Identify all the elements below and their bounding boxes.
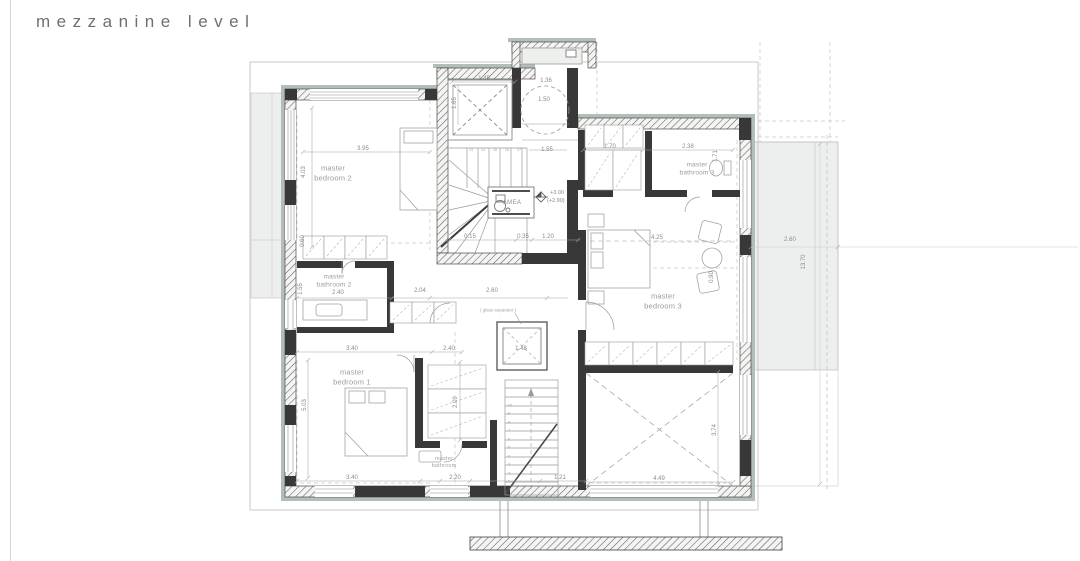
dim-void-width: 4.49 bbox=[653, 476, 665, 482]
bed-bedroom1 bbox=[345, 388, 407, 456]
room-label-master-bedroom-2: master bedroom 2 bbox=[309, 163, 357, 183]
stair-step-number: 9 bbox=[508, 411, 510, 416]
dim-bedroom1-height: 5.03 bbox=[302, 399, 308, 411]
dim-balcony-width: 2.60 bbox=[784, 237, 796, 243]
dim-balcony-height: 13.70 bbox=[801, 254, 807, 269]
lower-stair bbox=[505, 380, 558, 495]
dim-bathroom3-width: 2.38 bbox=[682, 144, 694, 150]
dim-stair-seg2: 0.35 bbox=[517, 234, 529, 240]
dim-bathroom2-closet: 0.60 bbox=[300, 235, 306, 247]
dim-landing-width: 1.55 bbox=[541, 147, 553, 153]
vanity-bathroom2 bbox=[303, 300, 367, 320]
foundation-strip bbox=[470, 501, 782, 550]
glass-separator-note: ( glass separator ) bbox=[480, 308, 516, 313]
winder-step-number: 16 bbox=[505, 148, 509, 152]
dim-stair-seg1: 0.15 bbox=[464, 234, 476, 240]
stair-step-number: 6 bbox=[508, 437, 510, 442]
bed-bedroom2 bbox=[400, 128, 437, 210]
dim-bedroom1-width-top: 3.40 bbox=[346, 346, 358, 352]
dim-bedroom3-width: 4.25 bbox=[651, 235, 663, 241]
dim-bedroom2-height: 4.03 bbox=[301, 166, 307, 178]
room-label-master-bathroom-2: master bathroom 2 bbox=[312, 274, 356, 291]
floor-plan-drawing bbox=[0, 0, 1080, 561]
dim-light-shaft-width: 1.48 bbox=[515, 346, 527, 352]
stair-step-number: 4 bbox=[508, 454, 510, 459]
dim-bathroom1-width: 2.20 bbox=[449, 475, 461, 481]
dim-hall-closet-width: 2.04 bbox=[414, 288, 426, 294]
stair-step-number: 7 bbox=[508, 428, 510, 433]
dim-stair-width: 1.21 bbox=[554, 475, 566, 481]
stair-step-number: 8 bbox=[508, 420, 510, 425]
level-lower: (+2.90) bbox=[547, 198, 565, 204]
dim-void-height: 3.74 bbox=[712, 424, 718, 436]
light-shaft bbox=[497, 313, 547, 370]
dim-bathroom3-height: 1.71 bbox=[713, 150, 719, 162]
winder-step-number: 13 bbox=[469, 148, 473, 152]
room-label-master-bedroom-3: master bedroom 3 bbox=[639, 291, 687, 311]
dim-closet1-width: 2.40 bbox=[443, 346, 455, 352]
stair-step-number: 5 bbox=[508, 445, 510, 450]
dim-entry-circle: 1.50 bbox=[538, 97, 550, 103]
level-marker bbox=[534, 192, 548, 202]
dim-corridor-width: 2.60 bbox=[486, 288, 498, 294]
dim-elevator-width: 1.45 bbox=[478, 76, 490, 82]
stair-step-number: 2 bbox=[508, 471, 510, 476]
terrace-left bbox=[251, 93, 284, 298]
dim-elevator-height: 1.65 bbox=[452, 97, 458, 109]
elevator bbox=[448, 80, 512, 140]
room-label-master-bedroom-1: master bedroom 1 bbox=[328, 367, 376, 387]
room-label-master-bathroom-3: master bathroom 3 bbox=[675, 162, 719, 179]
winder-step-number: 14 bbox=[481, 148, 485, 152]
amea-lift-label: AMEA bbox=[503, 200, 522, 208]
dim-bathroom2-height: 1.55 bbox=[298, 283, 304, 295]
dim-bedroom3-chair: 0.90 bbox=[709, 271, 715, 283]
balcony-right bbox=[750, 135, 838, 490]
dim-closet1-height: 2.09 bbox=[453, 396, 459, 408]
winder-step-number: 17 bbox=[517, 148, 521, 152]
room-label-master-bathroom: master bathroom bbox=[426, 456, 462, 470]
winder-step-number: 15 bbox=[493, 148, 497, 152]
dim-closet-top-width: 1.70 bbox=[604, 144, 616, 150]
void-cross bbox=[586, 373, 733, 486]
dim-bedroom1-width-bottom: 3.40 bbox=[346, 475, 358, 481]
level-upper: +3.00 bbox=[550, 190, 564, 196]
stair-step-number: 10 bbox=[508, 403, 512, 408]
dim-bathroom2-width: 2.40 bbox=[332, 290, 344, 296]
stair-step-number: 3 bbox=[508, 462, 510, 467]
dim-bedroom2-width: 3.95 bbox=[357, 146, 369, 152]
stair-step-number: 1 bbox=[508, 479, 510, 484]
floor-plan-sheet: mezzanine level bbox=[0, 0, 1080, 561]
dim-stair-seg3: 1.20 bbox=[542, 234, 554, 240]
dim-entry-width: 1.36 bbox=[540, 78, 552, 84]
